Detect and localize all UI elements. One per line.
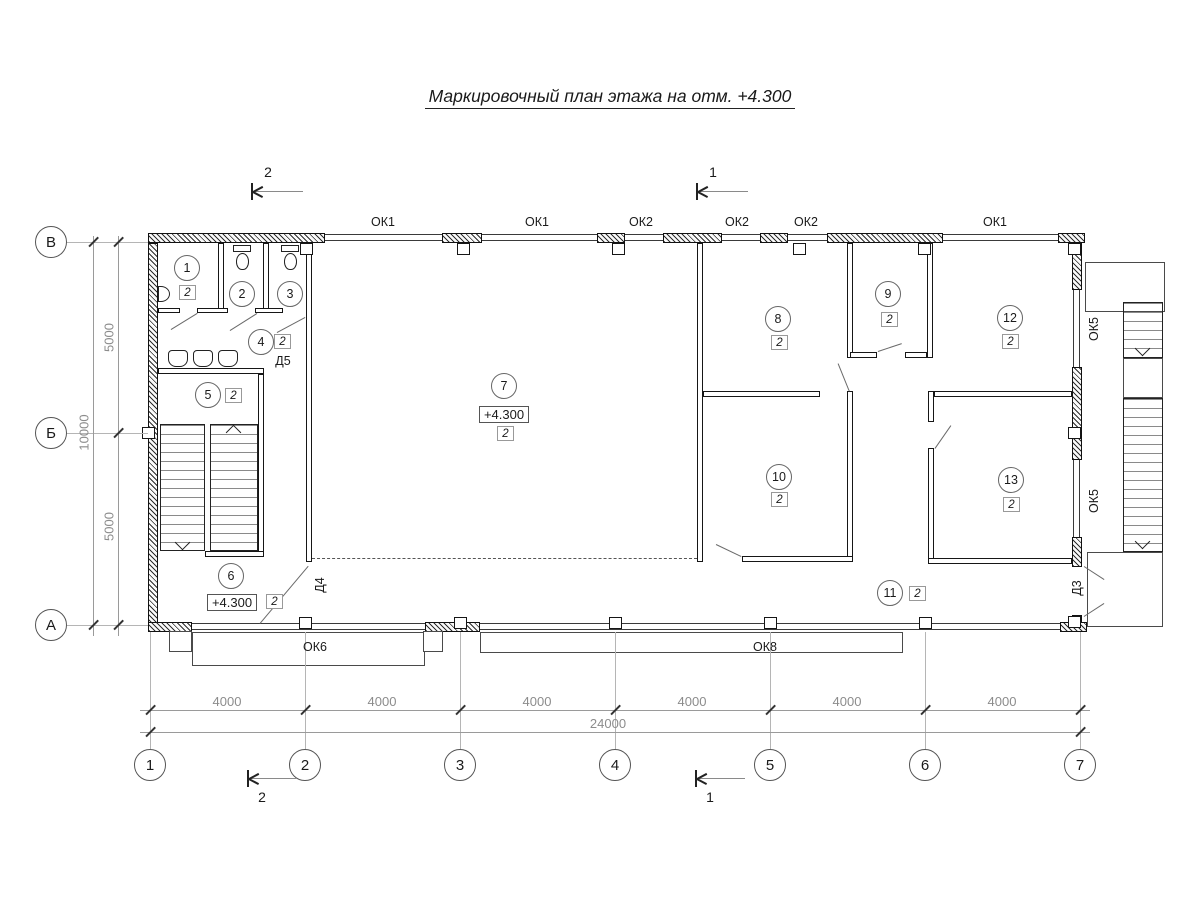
section-mark-line [697, 778, 745, 779]
door-label: Д3 [1070, 568, 1084, 608]
dim-label: 4000 [667, 694, 717, 709]
dim-label: 4000 [822, 694, 872, 709]
interior-wall [263, 243, 269, 311]
window-band [1073, 460, 1080, 537]
finish-square: 2 [881, 312, 898, 327]
dim-label: 5000 [102, 502, 117, 552]
window-label: ОК8 [745, 640, 785, 654]
stair-landing [1123, 358, 1163, 398]
drawing-title: Маркировочный план этажа на отм. +4.300 [380, 86, 840, 107]
door-swing-line [171, 313, 198, 330]
interior-wall [255, 308, 283, 313]
exterior-wall [827, 233, 943, 243]
room-number: 3 [277, 281, 303, 307]
drawing-title-text: Маркировочный план этажа на отм. +4.300 [425, 86, 796, 109]
finish-square: 2 [266, 594, 283, 609]
window-label: ОК1 [975, 215, 1015, 229]
interior-wall [928, 448, 934, 564]
section-mark-line [253, 191, 303, 192]
window-label: ОК2 [621, 215, 661, 229]
finish-square: 2 [909, 586, 926, 601]
floor-plan-drawing: Маркировочный план этажа на отм. +4.300 … [0, 0, 1200, 900]
interior-wall [306, 243, 312, 562]
interior-wall [928, 558, 1072, 564]
toilet-icon [236, 253, 249, 270]
interior-wall [703, 391, 820, 397]
interior-wall [934, 391, 1072, 397]
stair-flight [1123, 398, 1163, 552]
dim-label: 4000 [977, 694, 1027, 709]
interior-wall [847, 391, 853, 562]
sink-icon [193, 350, 213, 367]
finish-square: 2 [771, 335, 788, 350]
window-sill-outline [480, 632, 903, 653]
stair-landing [1087, 552, 1163, 627]
door-swing-line [277, 317, 306, 333]
column-marker [919, 617, 932, 629]
axis-bubble-v: В [35, 226, 67, 258]
axis-bubble-3: 3 [444, 749, 476, 781]
room-number: 4 [248, 329, 274, 355]
stair-flight [160, 424, 205, 551]
interior-wall [197, 308, 228, 313]
window-label: ОК1 [517, 215, 557, 229]
finish-square: 2 [1002, 334, 1019, 349]
elevation-mark: +4.300 [479, 406, 529, 423]
axis-line [67, 242, 148, 243]
window-label: ОК2 [717, 215, 757, 229]
exterior-wall [148, 233, 325, 243]
door-label: Д4 [313, 565, 327, 605]
section-mark-line [249, 778, 297, 779]
column-marker [764, 617, 777, 629]
window-label: ОК6 [295, 640, 335, 654]
toilet-icon [284, 253, 297, 270]
axis-bubble-6: 6 [909, 749, 941, 781]
door-swing-line [837, 363, 849, 391]
exterior-wall [597, 233, 625, 243]
room-number: 1 [174, 255, 200, 281]
interior-wall [927, 243, 933, 358]
elevation-mark: +4.300 [207, 594, 257, 611]
porch-step [169, 631, 192, 652]
overhang-dashed-line [312, 558, 697, 559]
dimension-line [118, 236, 119, 636]
interior-wall [218, 243, 224, 311]
room-number: 10 [766, 464, 792, 490]
window-band [625, 234, 663, 241]
window-label: ОК5 [1087, 481, 1101, 521]
column-marker [457, 243, 470, 255]
axis-bubble-a: А [35, 609, 67, 641]
column-marker [300, 243, 313, 255]
room-number: 5 [195, 382, 221, 408]
axis-line [67, 625, 148, 626]
dim-label: 4000 [202, 694, 252, 709]
toilet-icon [281, 245, 299, 252]
section-label: 1 [700, 789, 720, 805]
sink-icon [218, 350, 238, 367]
window-band [325, 234, 442, 241]
finish-square: 2 [497, 426, 514, 441]
exterior-wall [663, 233, 722, 243]
axis-bubble-1: 1 [134, 749, 166, 781]
dim-label: 5000 [102, 313, 117, 363]
window-band [943, 234, 1058, 241]
exterior-wall [442, 233, 482, 243]
dim-label: 24000 [578, 716, 638, 731]
exterior-wall [1058, 233, 1085, 243]
window-label: ОК2 [786, 215, 826, 229]
section-mark-line [698, 191, 748, 192]
section-label: 2 [258, 164, 278, 180]
door-swing-line [878, 343, 902, 352]
column-marker [612, 243, 625, 255]
axis-bubble-b: Б [35, 417, 67, 449]
dim-label: 10000 [77, 403, 92, 463]
section-label: 2 [252, 789, 272, 805]
column-marker [918, 243, 931, 255]
column-marker [793, 243, 806, 255]
sink-icon [168, 350, 188, 367]
finish-square: 2 [179, 285, 196, 300]
window-label: ОК5 [1087, 309, 1101, 349]
axis-bubble-4: 4 [599, 749, 631, 781]
column-marker [1068, 616, 1081, 628]
exterior-wall [1072, 537, 1082, 567]
room-number: 7 [491, 373, 517, 399]
room-number: 9 [875, 281, 901, 307]
room-number: 11 [877, 580, 903, 606]
interior-wall [850, 352, 877, 358]
column-marker [454, 617, 467, 629]
column-marker [609, 617, 622, 629]
interior-wall [742, 556, 853, 562]
room-number: 6 [218, 563, 244, 589]
porch-step [423, 631, 443, 652]
interior-wall [158, 368, 264, 374]
toilet-icon [233, 245, 251, 252]
room-number: 12 [997, 305, 1023, 331]
door-swing-line [230, 313, 258, 331]
room-number: 2 [229, 281, 255, 307]
dim-label: 4000 [357, 694, 407, 709]
window-band [480, 623, 903, 630]
interior-wall [158, 308, 180, 313]
door-swing-line [935, 425, 952, 449]
column-marker [1068, 243, 1081, 255]
interior-wall [205, 551, 264, 557]
finish-square: 2 [771, 492, 788, 507]
axis-bubble-7: 7 [1064, 749, 1096, 781]
dimension-line [140, 732, 1090, 733]
interior-wall [697, 243, 703, 562]
window-band [722, 234, 760, 241]
dimension-line [93, 236, 94, 636]
room-number: 8 [765, 306, 791, 332]
door-swing-line [716, 544, 742, 557]
urinal-icon [158, 286, 170, 302]
window-band [482, 234, 597, 241]
room-number: 13 [998, 467, 1024, 493]
window-band [788, 234, 827, 241]
column-marker [1068, 427, 1081, 439]
axis-bubble-5: 5 [754, 749, 786, 781]
finish-square: 2 [274, 334, 291, 349]
window-label: ОК1 [363, 215, 403, 229]
finish-square: 2 [225, 388, 242, 403]
stair-flight [210, 424, 258, 551]
door-label: Д5 [268, 354, 298, 368]
exterior-wall [1072, 367, 1082, 460]
window-band [1073, 290, 1080, 367]
exterior-wall [760, 233, 788, 243]
section-label: 1 [703, 164, 723, 180]
interior-wall [258, 374, 264, 557]
finish-square: 2 [1003, 497, 1020, 512]
column-marker [299, 617, 312, 629]
interior-wall [847, 243, 853, 358]
dim-label: 4000 [512, 694, 562, 709]
axis-bubble-2: 2 [289, 749, 321, 781]
interior-wall [905, 352, 927, 358]
